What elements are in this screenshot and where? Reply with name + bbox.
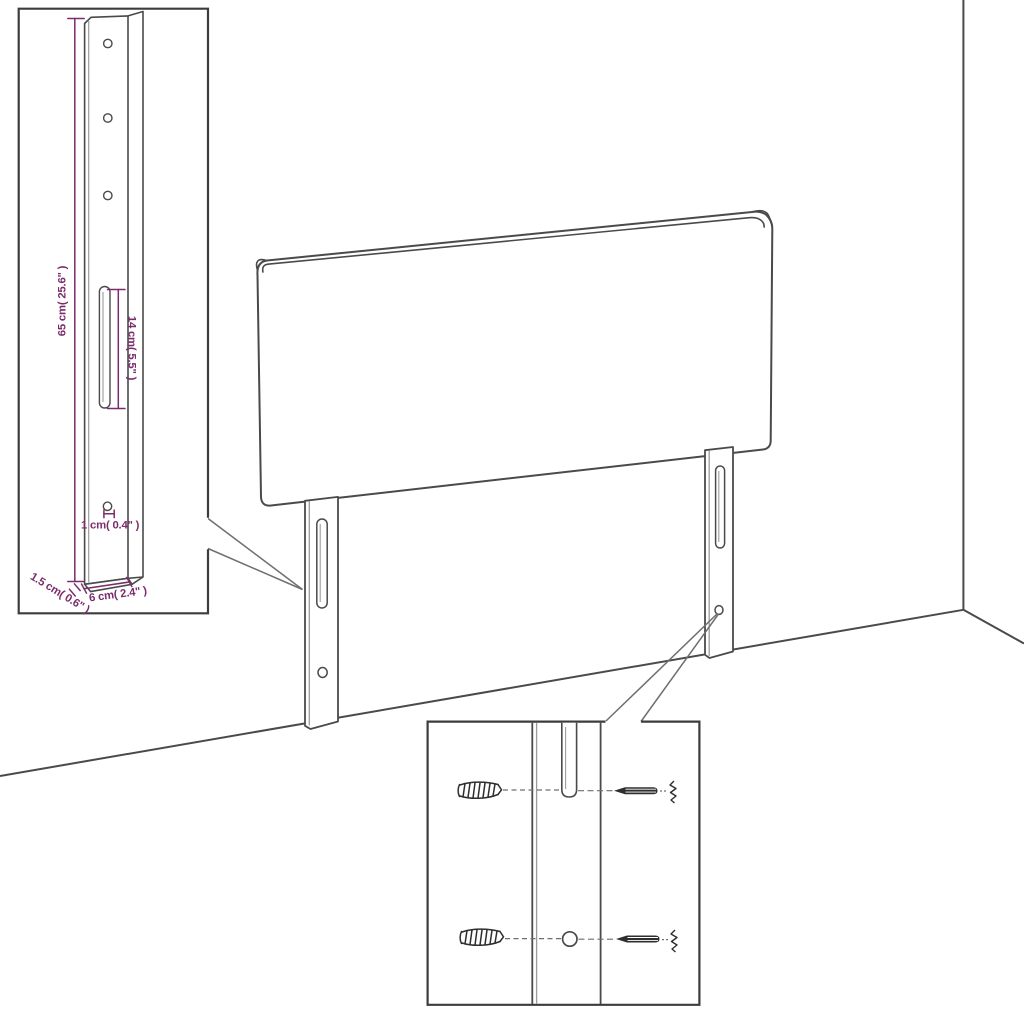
- right-callout-line-left: [606, 614, 718, 722]
- left-callout-wedge: [208, 519, 303, 590]
- strip-hole: [563, 932, 577, 946]
- bracket-hole-3: [104, 191, 112, 199]
- headboard-left-leg: [305, 497, 338, 729]
- bracket-hole-2: [104, 114, 112, 122]
- right-leg-slot: [716, 466, 725, 548]
- bracket-slot: [99, 287, 110, 409]
- headboard-panel: [257, 212, 772, 506]
- right-callout-line-right: [641, 614, 719, 722]
- label-hole-diameter: 1 cm( 0.4" ): [81, 520, 140, 532]
- bracket-side-face: [128, 12, 143, 579]
- bracket-hole-1: [104, 39, 112, 47]
- leg-detail-inset: 65 cm( 25.6" ) 14 cm( 5.5" ) 1 cm( 0.4" …: [19, 9, 208, 617]
- right-leg-hole: [715, 606, 723, 615]
- left-leg-slot: [317, 519, 327, 608]
- bracket-hole-4: [103, 502, 111, 510]
- floor-line-right: [963, 610, 1024, 644]
- right-callout-wedge: [606, 614, 719, 722]
- label-slot-length: 14 cm( 5.5" ): [126, 316, 138, 381]
- mounting-detail-inset: [428, 722, 700, 1005]
- headboard: [257, 211, 773, 506]
- strip-slot: [562, 723, 577, 797]
- label-leg-height: 65 cm( 25.6" ): [57, 265, 69, 336]
- leg-bracket-drawing: [85, 12, 143, 592]
- left-leg-hole: [318, 668, 327, 678]
- diagram-canvas: 65 cm( 25.6" ) 14 cm( 5.5" ) 1 cm( 0.4" …: [0, 0, 1024, 1024]
- product-diagram: 65 cm( 25.6" ) 14 cm( 5.5" ) 1 cm( 0.4" …: [0, 0, 1024, 1024]
